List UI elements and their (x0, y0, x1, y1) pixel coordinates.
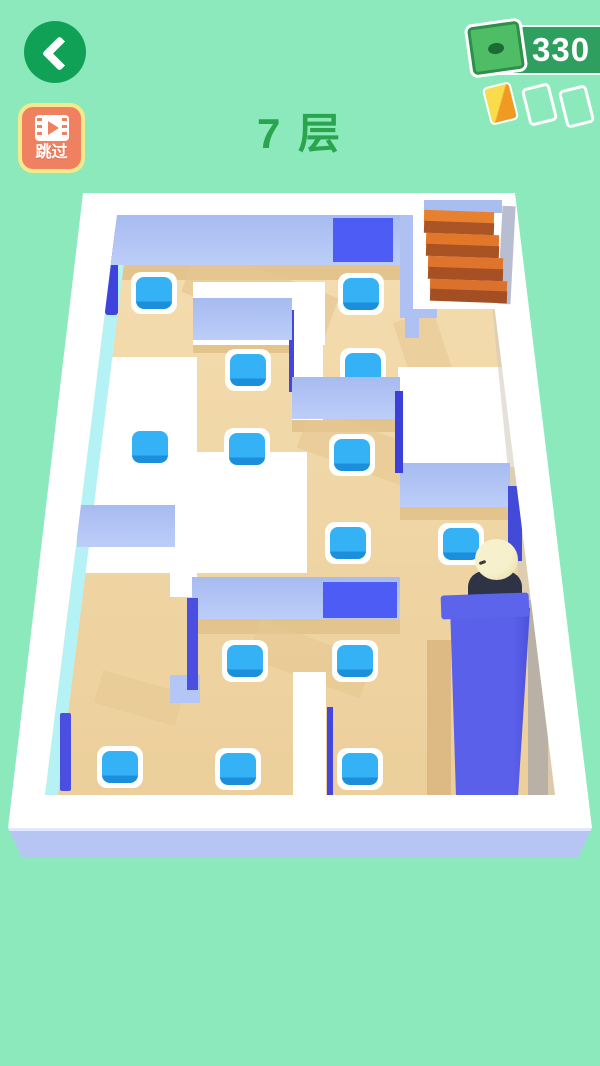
tile (337, 645, 373, 677)
play-triangle-icon (48, 121, 59, 135)
tile (132, 431, 168, 463)
wall-top-painted (333, 218, 393, 262)
wall-center-side-navy (395, 391, 403, 473)
film-sprockets-right (62, 118, 67, 138)
bill-oval (487, 42, 504, 55)
wall-lower-painted (323, 582, 397, 618)
film-sprockets-left (37, 118, 42, 138)
floor-shadow-elevator-left (427, 640, 451, 795)
tile (342, 753, 378, 785)
wall-stub (405, 300, 419, 338)
character-head (475, 539, 518, 580)
skip-button[interactable]: 跳过 (18, 103, 85, 173)
wall-center (292, 377, 400, 419)
wall-mid-left (193, 298, 292, 340)
card-empty-icon-2 (558, 84, 596, 129)
money-value: 330 (532, 31, 590, 69)
wall-right (400, 463, 510, 507)
tile (227, 645, 263, 677)
tile (330, 527, 366, 559)
path-white-3 (398, 367, 517, 467)
wall-lower-side-navy (187, 598, 198, 690)
tile (229, 433, 265, 465)
tile (334, 439, 370, 471)
path-white-7 (293, 672, 326, 795)
maze-floor (45, 215, 555, 795)
tile (136, 277, 172, 309)
tile (102, 751, 138, 783)
wall-left (77, 505, 175, 547)
tile (220, 753, 256, 785)
floor-shadow-right (400, 507, 510, 520)
wall-side-navy-bottomleft (60, 713, 71, 791)
card-empty-icon-1 (521, 82, 559, 127)
maze-platform-front-face (8, 828, 592, 858)
card-filled-icon (482, 81, 520, 126)
cards-row (484, 80, 600, 128)
tile (343, 278, 379, 310)
wall-side-navy-bottommid (327, 707, 333, 795)
money-bill-icon (467, 21, 525, 76)
skip-label: 跳过 (35, 143, 67, 162)
elevator-top-lip (441, 592, 530, 619)
video-film-icon (35, 115, 69, 141)
tile (230, 354, 266, 386)
back-button[interactable] (24, 21, 86, 83)
tile (443, 528, 479, 560)
back-chevron-icon (42, 36, 77, 71)
